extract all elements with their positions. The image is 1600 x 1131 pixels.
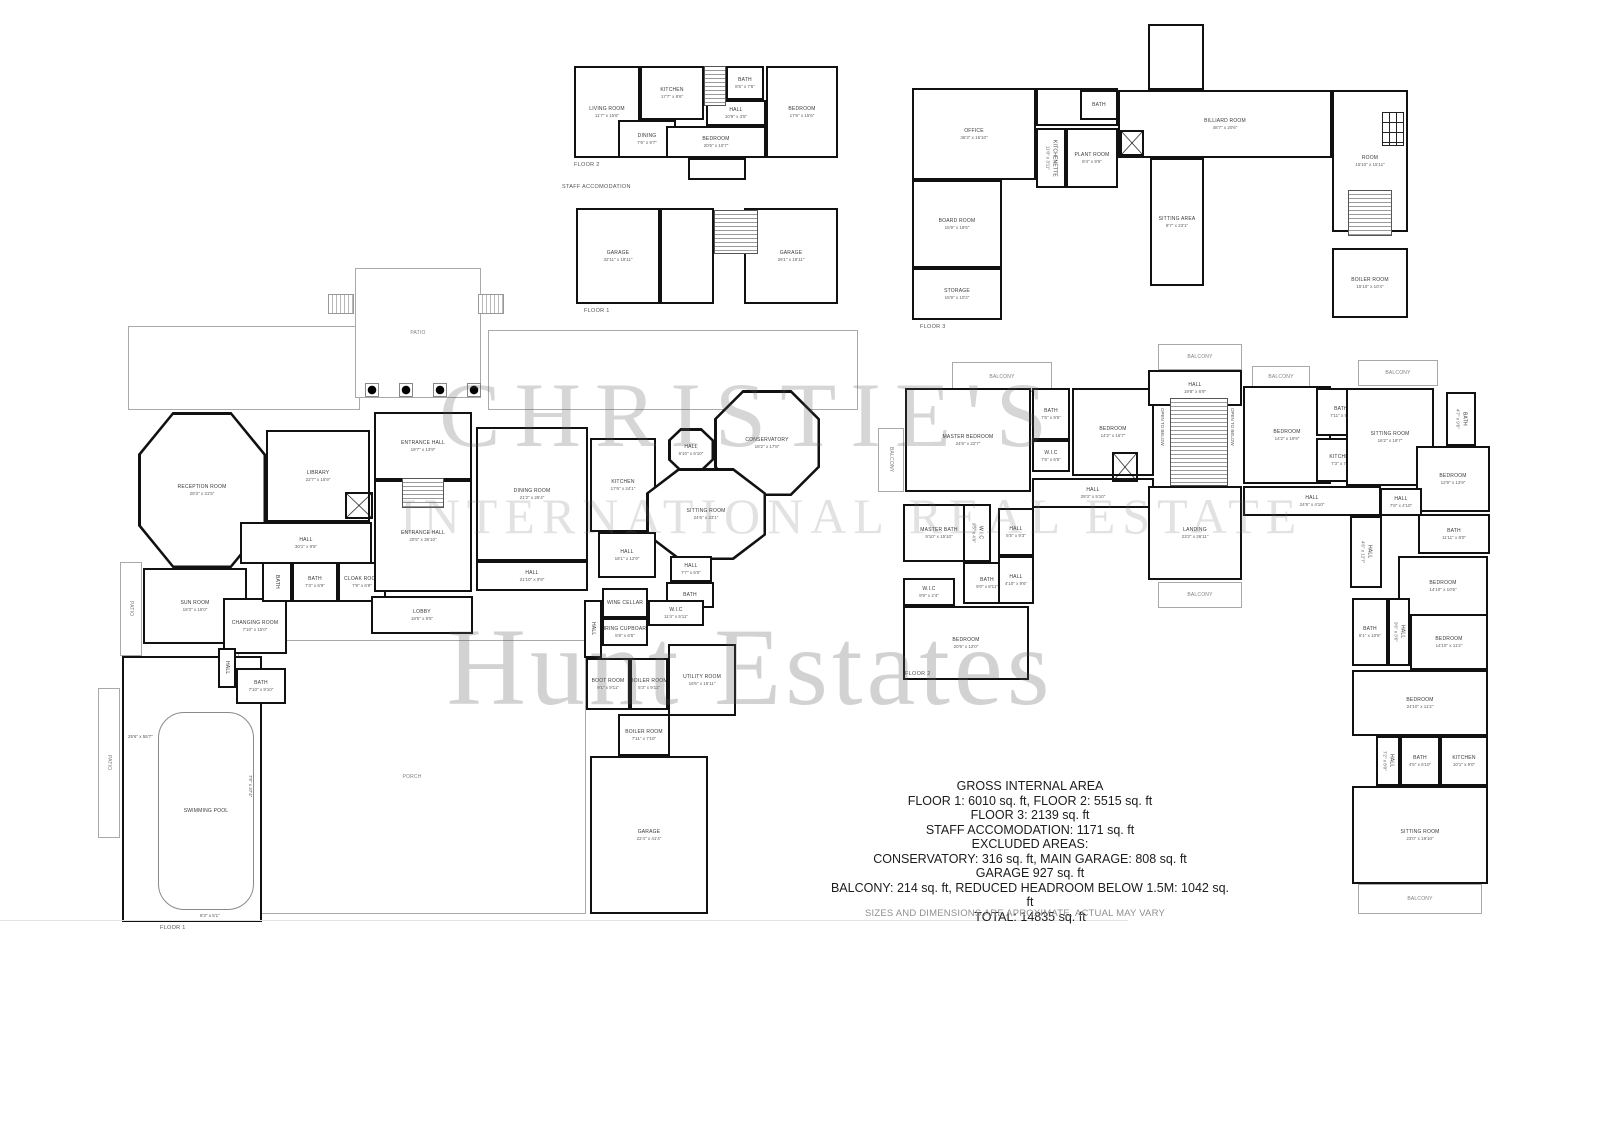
room-dims: 7'5" x 6'5" [1041, 457, 1061, 463]
room-hall: HALL9'6" x 3'6" [1388, 598, 1410, 666]
column-deco [399, 383, 413, 397]
room-dims: 6'1" x 10'6" [1359, 633, 1381, 639]
room-dims: 23'2" x 26'11" [1182, 534, 1209, 540]
room-name: HALL [1009, 574, 1022, 580]
room-changing-room: CHANGING ROOM7'10" x 15'0" [223, 598, 287, 654]
room-bedroom: BEDROOM20'5" x 12'0" [903, 606, 1029, 680]
room-sitting-room: SITTING ROOM24'6" x 23'1" [646, 468, 766, 560]
room-dims: 20'6" x 10'7" [704, 143, 729, 149]
room-area [488, 330, 858, 410]
area-summary: GROSS INTERNAL AREA FLOOR 1: 6010 sq. ft… [830, 779, 1230, 924]
summary-line: CONSERVATORY: 316 sq. ft, MAIN GARAGE: 8… [830, 852, 1230, 867]
room-storage: STORAGE15'9" x 10'2" [912, 268, 1002, 320]
room-name: GARAGE [607, 250, 630, 256]
room-bath: BATH4'5" x 6'10" [1400, 736, 1440, 786]
room-bath: BATH7'10" x 9'10" [236, 668, 286, 704]
room-bath: BATH7'3" x 6'9" [292, 562, 338, 602]
room-name: BATH [1092, 102, 1106, 108]
room-inner: HALL6'10" x 6'10" [671, 431, 712, 470]
room-dims: 29'3" x 5'10" [1081, 494, 1106, 500]
room-dims: 48'7" x 20'6" [1213, 125, 1238, 131]
room-dims: 7'10" x 9'10" [249, 687, 274, 693]
room-name: SITTING AREA [1159, 216, 1196, 222]
room-dims: 9'7" x 23'1" [1166, 223, 1188, 229]
room-porch: PORCH [238, 640, 586, 914]
stairs-deco [402, 478, 444, 508]
room-hall: HALL7'2" x 8'0" [1376, 736, 1400, 786]
summary-line: EXCLUDED AREAS: [830, 837, 1230, 852]
room-dims: 15'9" x 10'2" [945, 295, 970, 301]
room-dims: 11'4" x 5'11" [664, 614, 688, 620]
room-name: BILLIARD ROOM [1204, 118, 1246, 124]
room-dims: 8'4" x 9'6" [1082, 159, 1102, 165]
room-name: SWIMMING POOL [184, 808, 229, 814]
summary-line: FLOOR 3: 2139 sq. ft [830, 808, 1230, 823]
txt-deco: 25'6" x 55'7" [128, 734, 153, 739]
room-name: SUN ROOM [180, 600, 209, 606]
summary-line: STAFF ACCOMODATION: 1171 sq. ft [830, 823, 1230, 838]
room-dims: 4'5" x 6'10" [1409, 762, 1431, 768]
room-balcony: BALCONY [1158, 582, 1242, 608]
room-dims: 10'9" x 3'5" [725, 114, 747, 120]
txt-deco: OPEN TO BELOW [1160, 408, 1165, 446]
room-dims: 4'7" x 9'6" [1455, 409, 1461, 429]
room-dims: 7'6" x 9'7" [637, 140, 657, 146]
room-name: KITCHEN [1452, 755, 1475, 761]
room-dims: 11'0" x 3'11" [1045, 146, 1051, 170]
room-name: AIRING CUPBOARD [602, 626, 648, 632]
room-name: KITCHEN [611, 479, 634, 485]
room-bedroom: BEDROOM17'6" x 15'6" [766, 66, 838, 158]
room-name: SITTING ROOM [1370, 431, 1409, 437]
room-name: MASTER BEDROOM [943, 434, 994, 440]
floorplan-canvas: LIVING ROOM11'7" x 15'6"KITCHEN17'7" x 8… [0, 0, 1600, 1131]
room-name: BALCONY [1407, 896, 1432, 902]
room-name: BATH [274, 575, 280, 589]
stairs-deco [1170, 398, 1228, 486]
room-dims: 14'10" x 11'2" [1436, 643, 1463, 649]
room-name: DINING [638, 133, 657, 139]
room-name: PATIO [410, 330, 425, 336]
room-name: HALL [525, 570, 538, 576]
plan-label-floor-1: FLOOR 1 [160, 925, 186, 931]
room-dims: 24'6" x 23'1" [694, 515, 719, 521]
room-name: BATH [1447, 528, 1461, 534]
room-name: BOOT ROOM [592, 678, 625, 684]
room-name: OFFICE [964, 128, 984, 134]
room-dims: 7'8" x 4'10" [1390, 503, 1412, 509]
room-name: BALCONY [1268, 374, 1293, 380]
room-name: ENTRANCE HALL [401, 530, 445, 536]
room-name: GARAGE [780, 250, 803, 256]
room-balcony: BALCONY [1358, 884, 1482, 914]
xbox-deco [1112, 452, 1138, 482]
room-name: DINING ROOM [514, 488, 551, 494]
room-dims: 11'7" x 15'6" [595, 113, 619, 119]
room-name: BEDROOM [1439, 473, 1466, 479]
room-garage: GARAGE22'4" x 41'4" [590, 756, 708, 914]
room-boiler-room: BOILER ROOM5'3" x 9'11" [630, 658, 668, 710]
room-dims: 17'7" x 8'6" [661, 94, 683, 100]
room-name: BEDROOM [702, 136, 729, 142]
plan-label-staff-floor-1: FLOOR 1 [584, 308, 610, 314]
room-hall: HALL29'3" x 5'10" [1032, 478, 1154, 508]
room-w-i-c: W.I.C9'9" x 2'4" [903, 578, 955, 606]
room-name: BOILER ROOM [1351, 277, 1388, 283]
room-hall: HALL4'10" x 9'6" [998, 556, 1034, 604]
room-hall: HALL6'10" x 6'10" [668, 428, 714, 472]
room-hall: HALL18'1" x 12'9" [598, 532, 656, 578]
room-name: BATH [254, 680, 268, 686]
room-dims: 7'2" x 8'0" [1382, 751, 1388, 771]
room-dims: 9'0" x 8'11" [976, 584, 998, 590]
room-bath: BATH6'1" x 10'6" [1352, 598, 1388, 666]
room-name: PATIO [106, 755, 112, 770]
room-name: WINE CELLAR [607, 600, 643, 606]
column-deco [365, 383, 379, 397]
room-bedroom: BEDROOM14'10" x 11'2" [1410, 614, 1488, 670]
room-name: LANDING [1183, 527, 1207, 533]
summary-line: GARAGE 927 sq. ft [830, 866, 1230, 881]
room-dims: 18'1" x 12'9" [615, 556, 640, 562]
room-dims: 11'11" x 8'0" [1442, 535, 1466, 541]
room-dims: 21'10" x 9'9" [520, 577, 545, 583]
steps-deco [478, 294, 504, 314]
room-dims: 7'9" x 6'9" [352, 583, 372, 589]
room-bath: BATH7'5" x 9'5" [1032, 388, 1070, 440]
room-dims: 14'2" x 19'9" [1275, 436, 1300, 442]
room-dims: 15'10" x 10'4" [1356, 284, 1383, 290]
room-bath: BATH11'11" x 8'0" [1418, 514, 1490, 554]
room-dims: 4'6" x 12'7" [1360, 541, 1366, 563]
room-bedroom: BEDROOM20'6" x 10'7" [666, 126, 766, 158]
room-name: LOBBY [413, 609, 431, 615]
room-area [128, 326, 360, 410]
room-name: BEDROOM [1406, 697, 1433, 703]
room-sitting-area: SITTING AREA9'7" x 23'1" [1150, 158, 1204, 286]
room-name: W.I.C [1044, 450, 1057, 456]
stairs-deco [714, 210, 758, 254]
room-name: GARAGE [638, 829, 661, 835]
room-name: HALL [1388, 754, 1394, 767]
room-plant-room: PLANT ROOM8'4" x 9'6" [1066, 128, 1118, 188]
room-dims: 9'5" x 4'9" [971, 523, 977, 543]
room-name: BATH [1363, 626, 1377, 632]
room-dims: 20'5" x 36'10" [409, 537, 436, 543]
room-w-i-c: W.I.C7'5" x 6'5" [1032, 440, 1070, 472]
room-entrance-hall: ENTRANCE HALL19'7" x 13'9" [374, 412, 472, 480]
summary-line: BALCONY: 214 sq. ft, REDUCED HEADROOM BE… [830, 881, 1230, 910]
room-dims: 24'9" x 4'10" [1300, 502, 1325, 508]
room-name: W.I.C [922, 586, 935, 592]
room-dims: 18'5" x 9'5" [411, 616, 433, 622]
room-dims: 12'9" x 13'9" [1441, 480, 1466, 486]
room-name: BALCONY [1187, 354, 1212, 360]
room-bedroom: BEDROOM12'9" x 13'9" [1416, 446, 1490, 512]
room-balcony: BALCONY [1358, 360, 1438, 386]
room-kitchenette: KITCHENETTE11'0" x 3'11" [1036, 128, 1066, 188]
room-boot-room: BOOT ROOM9'1" x 9'11" [586, 658, 630, 710]
room-dims: 16'2" x 19'7" [1378, 438, 1403, 444]
room-name: BEDROOM [1273, 429, 1300, 435]
room-dims: 7'5" x 9'5" [1041, 415, 1061, 421]
room-name: RECEPTION ROOM [178, 484, 227, 490]
room-landing: LANDING23'2" x 26'11" [1148, 486, 1242, 580]
room-name: ENTRANCE HALL [401, 440, 445, 446]
plan-label-floor-3: FLOOR 3 [920, 324, 946, 330]
room-name: PATIO [128, 601, 134, 616]
room-dims: 15'9" x 19'5" [945, 225, 970, 231]
room-hall: HALL5'5" x 9'3" [998, 508, 1034, 556]
room-dims: 5'8" x 6'5" [615, 633, 635, 639]
room-name: HALL [1394, 496, 1407, 502]
room-dims: 19'8" x 6'9" [1184, 389, 1206, 395]
room-name: HALL [590, 622, 596, 635]
room-name: BATH [738, 77, 752, 83]
room-boiler-room: BOILER ROOM15'10" x 10'4" [1332, 248, 1408, 318]
room-name: BALCONY [989, 374, 1014, 380]
room-dims: 10'1" x 9'0" [1453, 762, 1475, 768]
room-garage: GARAGE26'1" x 19'11" [744, 208, 838, 304]
room-name: BATH [1461, 412, 1467, 426]
room-name: BATH [980, 577, 994, 583]
room-dims: 22'4" x 41'4" [637, 836, 662, 842]
room-name: BOARD ROOM [939, 218, 976, 224]
room-dining-room: DINING ROOM21'2" x 25'4" [476, 427, 588, 561]
room-dims: 6'10" x 6'10" [679, 451, 704, 457]
room-name: BALCONY [888, 447, 894, 472]
room-dims: 18'2" x 17'8" [755, 444, 780, 450]
room-dims: 30'1" x 9'6" [295, 544, 317, 550]
room-bath: BATH8'5" x 7'6" [726, 66, 764, 100]
room-dims: 7'10" x 15'0" [243, 627, 268, 633]
summary-line: FLOOR 1: 6010 sq. ft, FLOOR 2: 5515 sq. … [830, 794, 1230, 809]
room-name: CHANGING ROOM [232, 620, 279, 626]
room-name: CONSERVATORY [745, 437, 788, 443]
room-name: BEDROOM [1429, 580, 1456, 586]
room-utility-room: UTILITY ROOM16'5" x 15'11" [668, 644, 736, 716]
room-name: BEDROOM [1099, 426, 1126, 432]
room-dims: 36'3" x 15'10" [960, 135, 987, 141]
room-hall: HALL24'9" x 4'10" [1243, 486, 1381, 516]
room-area [660, 208, 714, 304]
room-name: KITCHENETTE [1051, 140, 1057, 177]
room-hall: HALL7'8" x 4'10" [1380, 488, 1422, 516]
room-name: HALL [1086, 487, 1099, 493]
plan-label-floor-2: FLOOR 2 [905, 671, 931, 677]
room-dims: 15'10" x 15'11" [1355, 162, 1384, 168]
room-balcony: BALCONY [1158, 344, 1242, 370]
room-dims: 20'5" x 12'0" [954, 644, 979, 650]
room-dims: 5'3" x 9'11" [638, 685, 660, 691]
room-kitchen: KITCHEN10'1" x 9'0" [1440, 736, 1488, 786]
room-dims: 26'1" x 19'11" [778, 257, 805, 263]
room-bath: BATH4'7" x 9'6" [1446, 392, 1476, 446]
room-name: W.I.C [977, 526, 983, 539]
room-garage: GARAGE32'11" x 19'11" [576, 208, 660, 304]
room-dims: 24'10" x 11'2" [1407, 704, 1434, 710]
room-name: LIVING ROOM [589, 106, 625, 112]
txt-deco: 7'8" x 37'4" [248, 775, 253, 797]
summary-title: GROSS INTERNAL AREA [830, 779, 1230, 794]
room-airing-cupboard: AIRING CUPBOARD5'8" x 6'5" [602, 618, 648, 646]
room-name: MASTER BATH [920, 527, 957, 533]
room-w-i-c: W.I.C9'5" x 4'9" [963, 504, 991, 562]
room-hall: HALL [584, 600, 602, 658]
room-dims: 17'6" x 15'6" [790, 113, 815, 119]
room-kitchen: KITCHEN17'7" x 8'6" [640, 66, 704, 120]
room-name: UTILITY ROOM [683, 674, 721, 680]
room-billiard-room: BILLIARD ROOM48'7" x 20'6" [1118, 90, 1332, 158]
room-name: BEDROOM [1435, 636, 1462, 642]
room-name: BALCONY [1385, 370, 1410, 376]
room-swimming-pool: SWIMMING POOL [158, 712, 254, 910]
room-dims: 32'11" x 19'11" [603, 257, 632, 263]
room-dims: 22'7" x 15'9" [306, 477, 331, 483]
room-name: SITTING ROOM [686, 508, 725, 514]
room-area [688, 158, 746, 180]
room-hall: HALL30'1" x 9'6" [240, 522, 372, 564]
room-dims: 7'3" x 6'9" [305, 583, 325, 589]
stairs-deco [1348, 190, 1392, 236]
room-name: HALL [1305, 495, 1318, 501]
room-inner: SITTING ROOM24'6" x 23'1" [649, 471, 764, 558]
room-office: OFFICE36'3" x 15'10" [912, 88, 1036, 180]
room-name: PORCH [402, 774, 421, 780]
room-hall: HALL7'7" x 6'0" [670, 556, 712, 582]
room-name: HALL [1009, 526, 1022, 532]
room-dims: 9'6" x 3'6" [1393, 622, 1399, 642]
room-name: BATH [683, 592, 697, 598]
room-dims: 8'5" x 7'6" [735, 84, 755, 90]
room-board-room: BOARD ROOM15'9" x 19'5" [912, 180, 1002, 268]
room-name: BEDROOM [788, 106, 815, 112]
room-dims: 24'5" x 22'7" [956, 441, 981, 447]
room-name: HALL [684, 444, 697, 450]
room-name: BALCONY [1187, 592, 1212, 598]
room-area [1148, 24, 1204, 90]
room-bath: BATH [1080, 90, 1118, 120]
room-name: PLANT ROOM [1075, 152, 1110, 158]
room-sitting-room: SITTING ROOM23'0" x 19'10" [1352, 786, 1488, 884]
room-name: SITTING ROOM [1400, 829, 1439, 835]
room-name: HALL [684, 563, 697, 569]
room-dims: 7'11" x 7'10" [632, 736, 656, 742]
room-name: BOILER ROOM [630, 678, 667, 684]
room-lobby: LOBBY18'5" x 9'5" [371, 596, 473, 634]
room-name: BATH [1413, 755, 1427, 761]
room-bedroom: BEDROOM24'10" x 11'2" [1352, 670, 1488, 736]
room-dims: 16'5" x 15'11" [689, 681, 716, 687]
room-patio: PATIO [120, 562, 142, 656]
room-name: HALL [1188, 382, 1201, 388]
room-bath: BATH [262, 562, 292, 602]
room-w-i-c: W.I.C11'4" x 5'11" [648, 600, 704, 626]
room-master-bedroom: MASTER BEDROOM24'5" x 22'7" [905, 388, 1031, 492]
room-dims: 17'6" x 24'1" [611, 486, 636, 492]
steps-deco [328, 294, 354, 314]
room-bedroom: BEDROOM14'10" x 10'6" [1398, 556, 1488, 616]
room-dims: 23'0" x 19'10" [1406, 836, 1433, 842]
room-name: BEDROOM [952, 637, 979, 643]
xbox-deco [1120, 130, 1144, 156]
room-dims: 9'1" x 9'11" [597, 685, 619, 691]
txt-deco: 8'3" x 5'1" [200, 913, 220, 918]
room-dims: 5'5" x 9'3" [1006, 533, 1026, 539]
grid-deco [1382, 112, 1404, 146]
plan-sublabel-staff-floor-2: STAFF ACCOMODATION [562, 184, 631, 190]
room-hall: HALL21'10" x 9'9" [476, 561, 588, 591]
txt-deco: OPEN TO BELOW [1230, 408, 1235, 446]
room-hall: HALL4'6" x 12'7" [1350, 516, 1382, 588]
room-patio: PATIO [98, 688, 120, 838]
room-name: HALL [620, 549, 633, 555]
plan-label-staff-floor-2: FLOOR 2 [574, 162, 600, 168]
room-name: ROOM [1362, 155, 1378, 161]
floorplan-sheet: LIVING ROOM11'7" x 15'6"KITCHEN17'7" x 8… [0, 0, 1600, 1131]
room-dims: 29'3" x 31'5" [190, 491, 215, 497]
disclaimer-text: SIZES AND DIMENSIONS ARE APROXIMATE, ACT… [820, 908, 1210, 919]
room-dims: 18'3" x 15'0" [183, 607, 208, 613]
room-name: BATH [308, 576, 322, 582]
room-name: HALL [729, 107, 742, 113]
room-dims: 7'7" x 6'0" [681, 570, 701, 576]
room-balcony: BALCONY [1252, 366, 1310, 388]
room-name: KITCHEN [660, 87, 683, 93]
room-name: HALL [299, 537, 312, 543]
room-patio: PATIO [355, 268, 481, 398]
room-name: BOILER ROOM [625, 729, 662, 735]
room-name: LIBRARY [307, 470, 330, 476]
column-deco [467, 383, 481, 397]
room-boiler-room: BOILER ROOM7'11" x 7'10" [618, 714, 670, 756]
room-name: STORAGE [944, 288, 970, 294]
room-name: HALL [224, 661, 230, 674]
room-name: W.I.C [669, 607, 682, 613]
room-dims: 19'7" x 13'9" [411, 447, 436, 453]
room-dims: 21'2" x 25'4" [520, 495, 545, 501]
room-dims: 9'10" x 15'10" [925, 534, 952, 540]
room-dims: 9'9" x 2'4" [919, 593, 939, 599]
room-wine-cellar: WINE CELLAR [602, 588, 648, 618]
xbox-deco [345, 492, 373, 519]
room-dims: 14'10" x 10'6" [1429, 587, 1456, 593]
room-dims: 14'2" x 16'7" [1101, 433, 1126, 439]
room-dims: 4'10" x 9'6" [1005, 581, 1027, 587]
room-balcony: BALCONY [878, 428, 904, 492]
room-name: HALL [1399, 625, 1405, 638]
column-deco [433, 383, 447, 397]
stairs-deco [704, 66, 726, 106]
room-hall: HALL [218, 648, 236, 688]
room-name: BATH [1044, 408, 1058, 414]
room-name: HALL [1366, 545, 1372, 558]
